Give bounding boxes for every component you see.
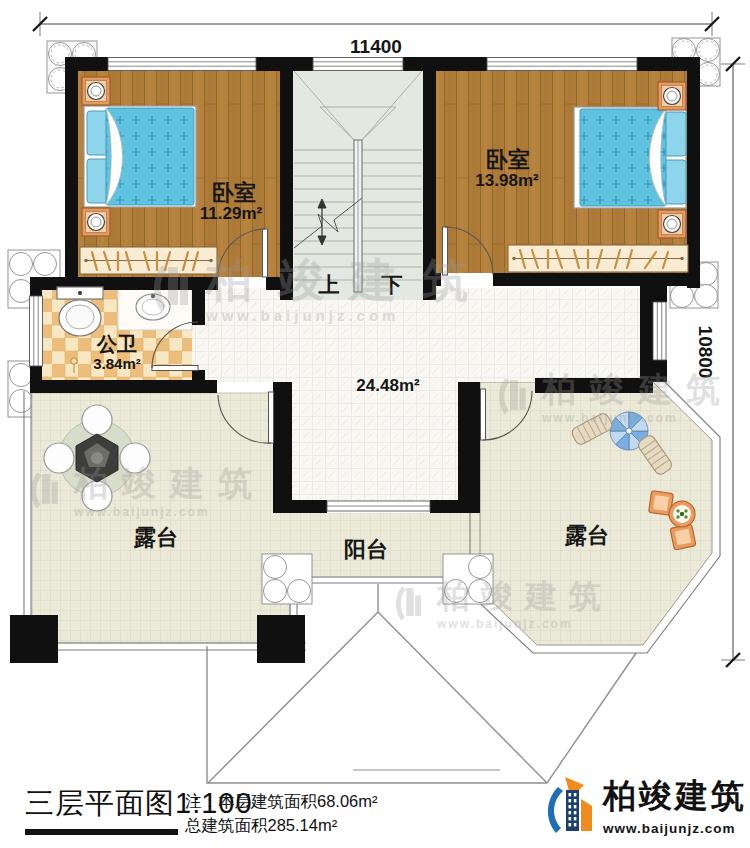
toilet: [57, 287, 103, 336]
bathroom-area: 3.84m²: [93, 356, 141, 371]
terrace-left-label: 露台: [134, 527, 178, 549]
dimension-right-label: 10800: [696, 326, 715, 379]
bedroom-left-area: 11.29m²: [200, 205, 262, 222]
patio-chair-2: [670, 524, 696, 550]
title-underline: [25, 829, 178, 835]
area-note-line1: 注：本层建筑面积68.06m²: [185, 790, 378, 814]
patio-side-table: [669, 501, 695, 527]
title-block: 三层平面图1:100 注：本层建筑面积68.06m² 总建筑面积285.14m²…: [0, 770, 750, 848]
hall-floor: [192, 288, 657, 382]
porch-column-right: [443, 554, 493, 604]
bed-left: [84, 106, 196, 207]
stairs-down-label: 下: [382, 274, 403, 295]
window-stairwell: [313, 58, 403, 71]
bedroom-left-label: 卧室: [212, 182, 256, 204]
nightstand-right-top: [658, 82, 686, 110]
porch-column-left: [262, 554, 312, 604]
window-bedroom-left: [108, 58, 256, 71]
dimension-top-label: 11400: [350, 37, 402, 56]
window-bedroom-right: [487, 58, 637, 71]
company-name: 柏竣建筑: [603, 774, 747, 819]
floor-plan: 11400 10800 卧室 11.29m² 卧室 13.98m² 公卫 3.8…: [0, 0, 750, 848]
bedroom-right-area: 13.98m²: [475, 172, 538, 189]
balcony-label: 阳台: [344, 539, 388, 561]
window-bathroom: [30, 296, 43, 366]
nightstand-left-top: [82, 77, 110, 105]
hall-balcony-window: [327, 501, 430, 511]
area-note-line2: 总建筑面积285.14m²: [185, 814, 378, 838]
company-logo: 柏竣建筑 www.baijunjz.com: [541, 774, 747, 836]
hall-lower-floor: [292, 382, 458, 502]
wardrobe-right: [508, 245, 688, 272]
bed-right: [574, 107, 686, 208]
stairs-up-label: 上: [319, 274, 340, 295]
floor-plan-drawing: [0, 0, 750, 848]
terrace-right-label: 露台: [565, 525, 609, 547]
nightstand-left-bottom: [82, 208, 110, 236]
window-hall-east: [653, 302, 666, 360]
nightstand-right-bottom: [658, 210, 686, 238]
bathroom-label: 公卫: [97, 334, 137, 354]
company-logo-icon: [541, 775, 595, 835]
bedroom-right-label: 卧室: [486, 149, 530, 171]
hall-area: 24.48m²: [356, 377, 419, 394]
wardrobe-left: [80, 247, 217, 274]
sink: [136, 294, 170, 320]
company-url: www.baijunjz.com: [603, 821, 747, 836]
area-note: 注：本层建筑面积68.06m² 总建筑面积285.14m²: [185, 790, 378, 838]
